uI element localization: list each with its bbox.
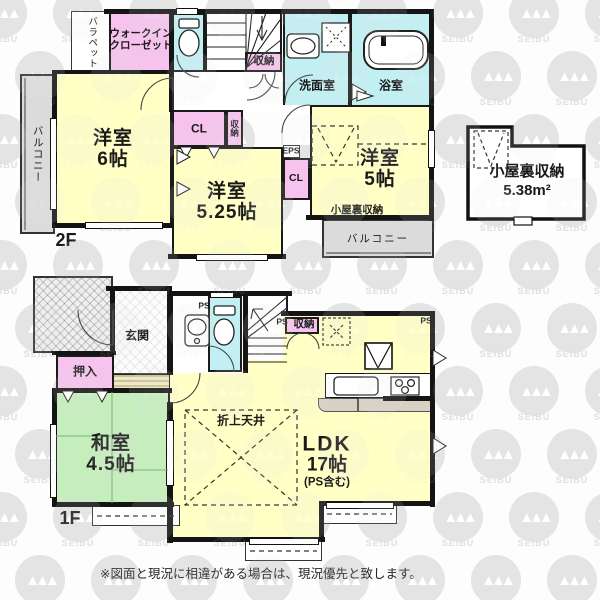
washbasin-icon-2f bbox=[287, 34, 319, 58]
room5-name: 洋室 bbox=[360, 148, 400, 169]
washroom-label: 洗面室 bbox=[299, 79, 335, 92]
toilet-icon-2f bbox=[179, 19, 199, 56]
cl-left-label: CL bbox=[191, 122, 207, 135]
eps-label: EPS bbox=[282, 146, 299, 155]
attic-name-label: 小屋裏収納 bbox=[489, 164, 564, 181]
washbasin-icon-1f bbox=[185, 315, 209, 346]
washing-machine-icon bbox=[322, 23, 350, 52]
ps-hall-label: PS bbox=[198, 301, 209, 310]
room525-size: 5.25帖 bbox=[197, 202, 258, 223]
balcony-2f-left-label: バルコニー bbox=[31, 125, 43, 183]
washitsu-name: 和室 bbox=[91, 433, 131, 454]
room525-name: 洋室 bbox=[207, 181, 247, 202]
room525-label: 洋室 5.25帖 bbox=[197, 182, 258, 224]
room6-label: 洋室 6帖 bbox=[93, 129, 133, 171]
floor-label-1f: 1F bbox=[59, 509, 80, 529]
room6-size: 6帖 bbox=[97, 149, 129, 170]
wic-label-line2: クローゼット bbox=[110, 39, 173, 51]
attic-access-label: 小屋裏収納 bbox=[331, 205, 384, 217]
disclaimer-text: ※図面と現況に相違がある場合は、現況優先と致します。 bbox=[100, 563, 422, 582]
genkan-label: 玄関 bbox=[125, 329, 149, 342]
door-arcs bbox=[78, 55, 319, 403]
oshiire-label: 押入 bbox=[73, 365, 97, 378]
kitchen-sink-icon bbox=[334, 377, 378, 411]
wic-label: ウォークイン クローゼット bbox=[110, 28, 173, 51]
washitsu-label: 和室 4.5帖 bbox=[86, 434, 135, 476]
storage-mid-label: 収納 bbox=[229, 120, 238, 137]
floorplan-image: ▲▲▲SEIBU▲▲▲SEIBU▲▲▲SEIBU▲▲▲SEIBU▲▲▲SEIBU… bbox=[0, 0, 600, 600]
toilet-icon-1f bbox=[214, 306, 235, 345]
balcony-2f-right-label: バルコニー bbox=[347, 234, 409, 246]
stove-icon bbox=[391, 377, 419, 395]
stairs-1f-lines bbox=[246, 297, 287, 362]
ldk-size-label: 17帖 bbox=[307, 456, 347, 477]
bathtub-icon bbox=[364, 31, 428, 69]
bathroom-label: 浴室 bbox=[379, 79, 403, 92]
attic-size-label: 5.38m² bbox=[503, 183, 551, 200]
floor-label-2f: 2F bbox=[55, 231, 76, 251]
ldk-note-label: (PS含む) bbox=[304, 477, 350, 490]
ldk-name-label: LDK bbox=[302, 432, 351, 455]
refrigerator-space-icon bbox=[365, 343, 392, 369]
ceiling-label: 折上天井 bbox=[217, 414, 265, 427]
ps-kitchen-label: PS bbox=[420, 316, 431, 325]
parapet-label: バラペット bbox=[86, 17, 96, 70]
washitsu-size: 4.5帖 bbox=[86, 454, 135, 475]
room5-size: 5帖 bbox=[364, 169, 396, 190]
wic-label-line1: ウォークイン bbox=[110, 27, 173, 39]
room5-label: 洋室 5帖 bbox=[360, 149, 400, 191]
ps-storage-label: PS bbox=[276, 317, 287, 326]
stairs-storage-2f-label: 収納 bbox=[254, 56, 275, 68]
storage-1f-label: 収納 bbox=[294, 319, 315, 331]
room6-name: 洋室 bbox=[93, 128, 133, 149]
cl-right-label: CL bbox=[289, 173, 303, 185]
